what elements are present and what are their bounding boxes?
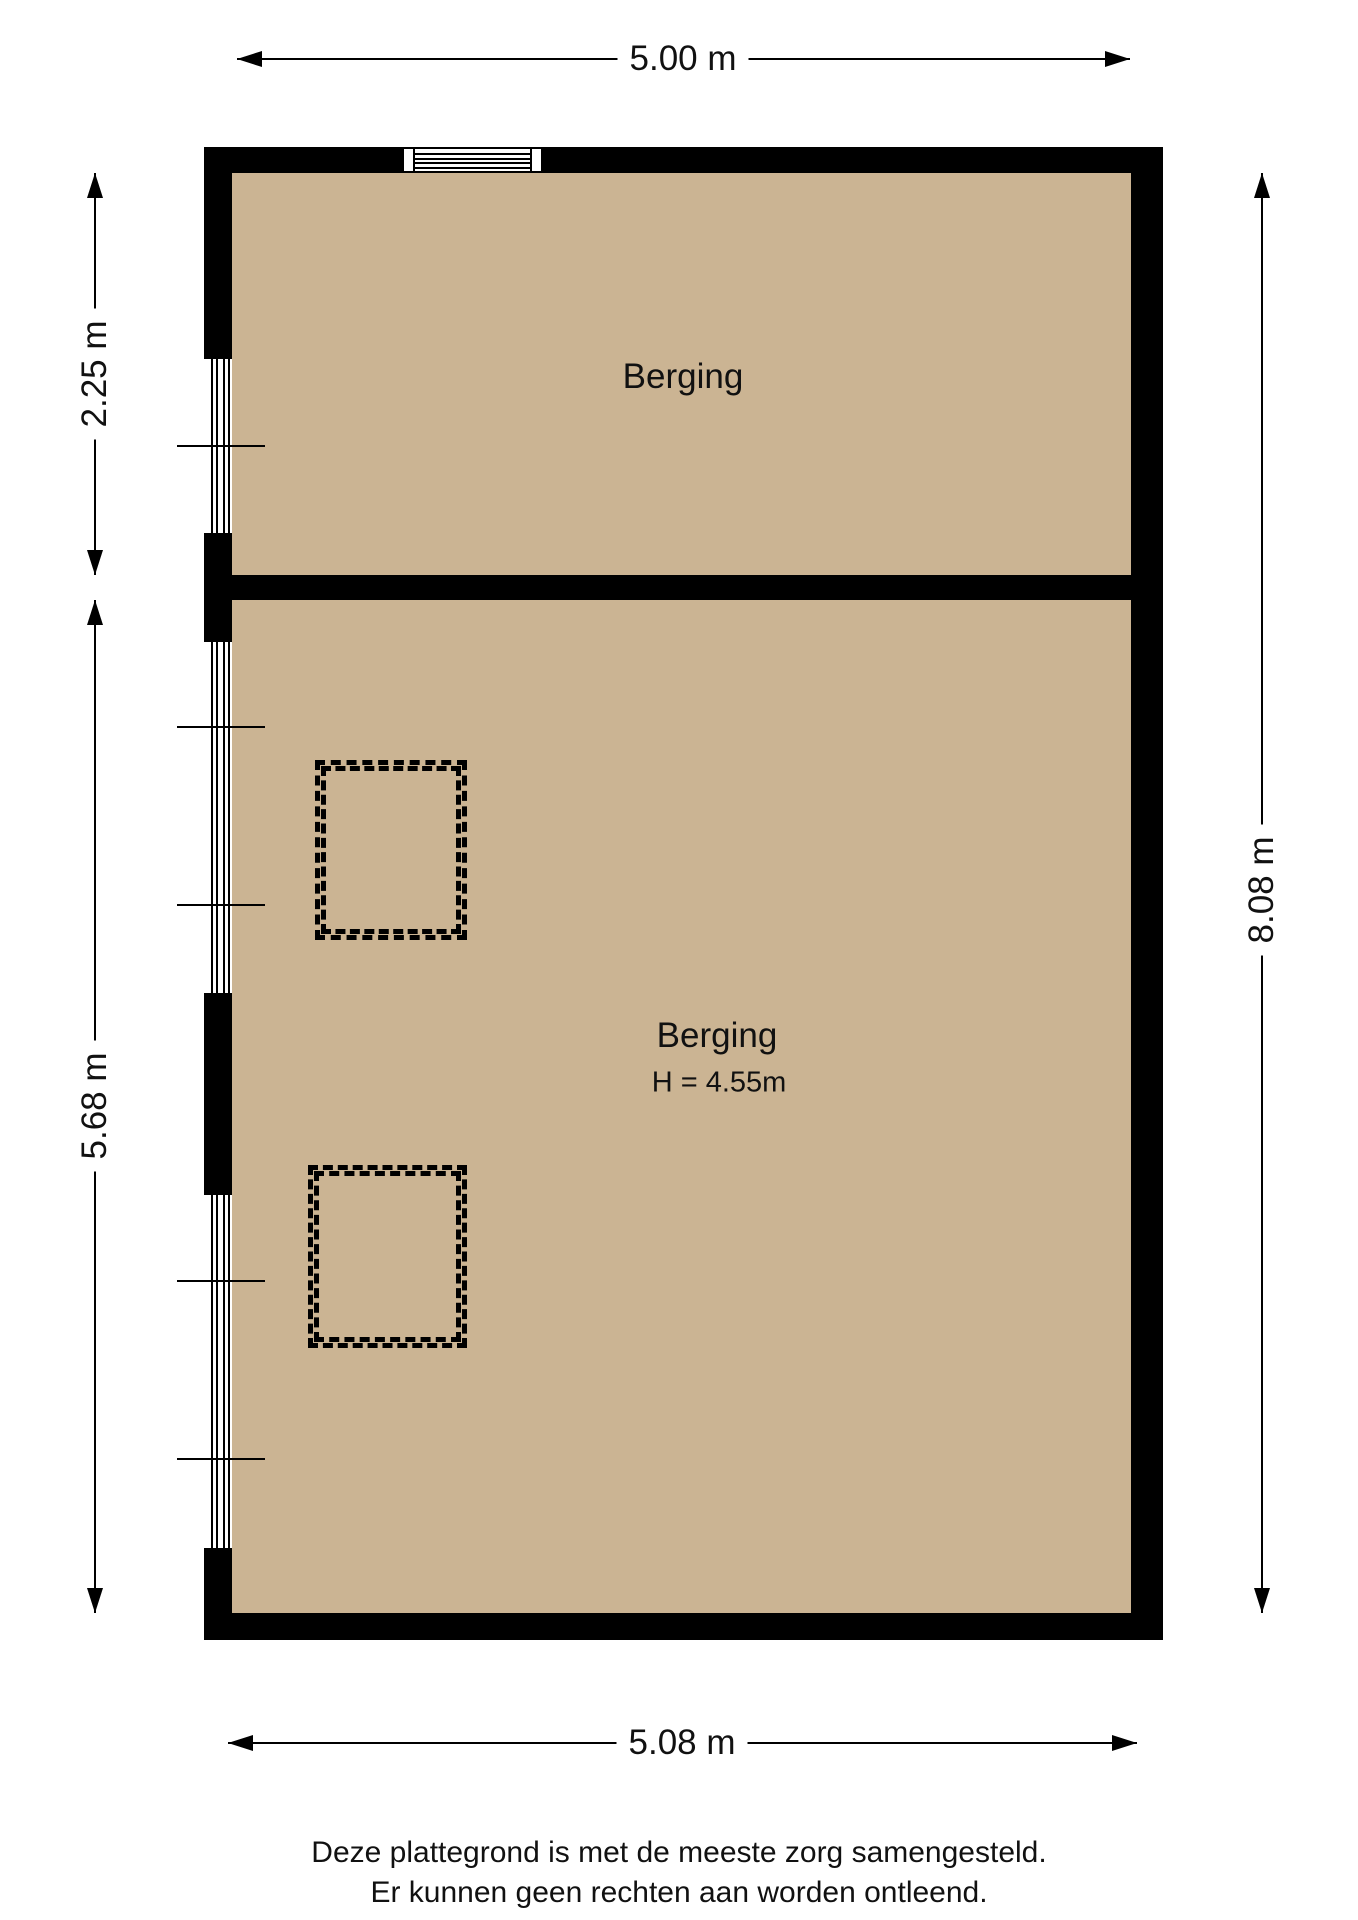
floor-plan-canvas: Berging Berging H = 4.55m 5.00 m 2.25 m …	[0, 0, 1358, 1920]
window-tick	[177, 1280, 265, 1282]
window-top-icon	[402, 147, 543, 173]
wall-divider	[204, 575, 1131, 600]
disclaimer-line-2: Er kunnen geen rechten aan worden ontlee…	[0, 1873, 1358, 1913]
dimension-label-top: 5.00 m	[618, 37, 749, 81]
window-tick	[177, 1458, 265, 1460]
disclaimer-line-1: Deze plattegrond is met de meeste zorg s…	[0, 1833, 1358, 1873]
window-left-2-icon	[204, 640, 232, 995]
room-1-label: Berging	[623, 357, 744, 397]
window-tick	[177, 445, 265, 447]
room-2-label: Berging	[657, 1016, 778, 1056]
room-2-height-label: H = 4.55m	[652, 1067, 787, 1100]
dimension-label-right: 8.08 m	[1240, 825, 1284, 956]
window-tick	[177, 904, 265, 906]
window-left-3-icon	[204, 1193, 232, 1550]
dashed-opening-2	[308, 1165, 467, 1348]
dashed-opening-1	[315, 760, 467, 940]
window-tick	[177, 726, 265, 728]
wall-right	[1131, 147, 1163, 1640]
disclaimer: Deze plattegrond is met de meeste zorg s…	[0, 1833, 1358, 1913]
wall-top	[204, 147, 1163, 173]
wall-bottom	[204, 1613, 1163, 1640]
dimension-label-left-bottom: 5.68 m	[73, 1041, 117, 1172]
dimension-label-bottom: 5.08 m	[617, 1721, 748, 1765]
dimension-label-left-top: 2.25 m	[73, 309, 117, 440]
